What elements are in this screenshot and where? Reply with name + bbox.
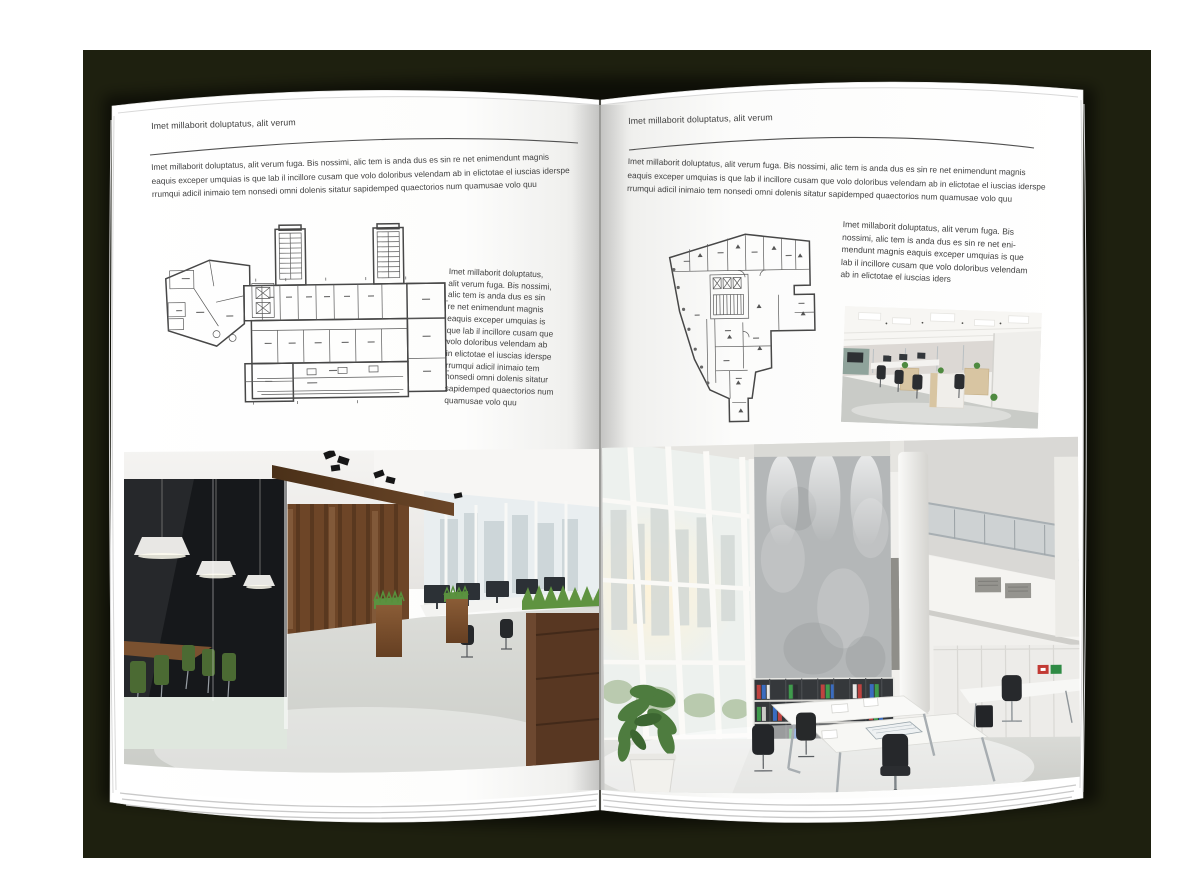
right-page-side-text: Imet millaborit doluptatus, alit verum f… bbox=[840, 218, 1061, 290]
floor-plan-left bbox=[155, 221, 458, 415]
left-page-intro: Imet millaborit doluptatus, alit verum f… bbox=[151, 149, 600, 201]
office-photo-small bbox=[841, 306, 1042, 429]
left-page-title: Imet millaborit doluptatus, alit verum bbox=[151, 117, 296, 131]
right-page-intro: Imet millaborit doluptatus, alit verum f… bbox=[627, 155, 1076, 208]
right-page: Imet millaborit doluptatus, alit verum I… bbox=[601, 75, 1078, 790]
office-photo-right bbox=[602, 437, 1081, 818]
office-photo-left bbox=[124, 449, 599, 781]
left-page: Imet millaborit doluptatus, alit verum I… bbox=[118, 85, 599, 790]
left-page-side-text: Imet millaborit doluptatus, alit verum f… bbox=[444, 266, 589, 411]
right-page-title: Imet millaborit doluptatus, alit verum bbox=[628, 112, 773, 126]
floor-plan-right bbox=[647, 217, 851, 428]
magazine-mockup: Imet millaborit doluptatus, alit verum I… bbox=[0, 0, 1200, 891]
